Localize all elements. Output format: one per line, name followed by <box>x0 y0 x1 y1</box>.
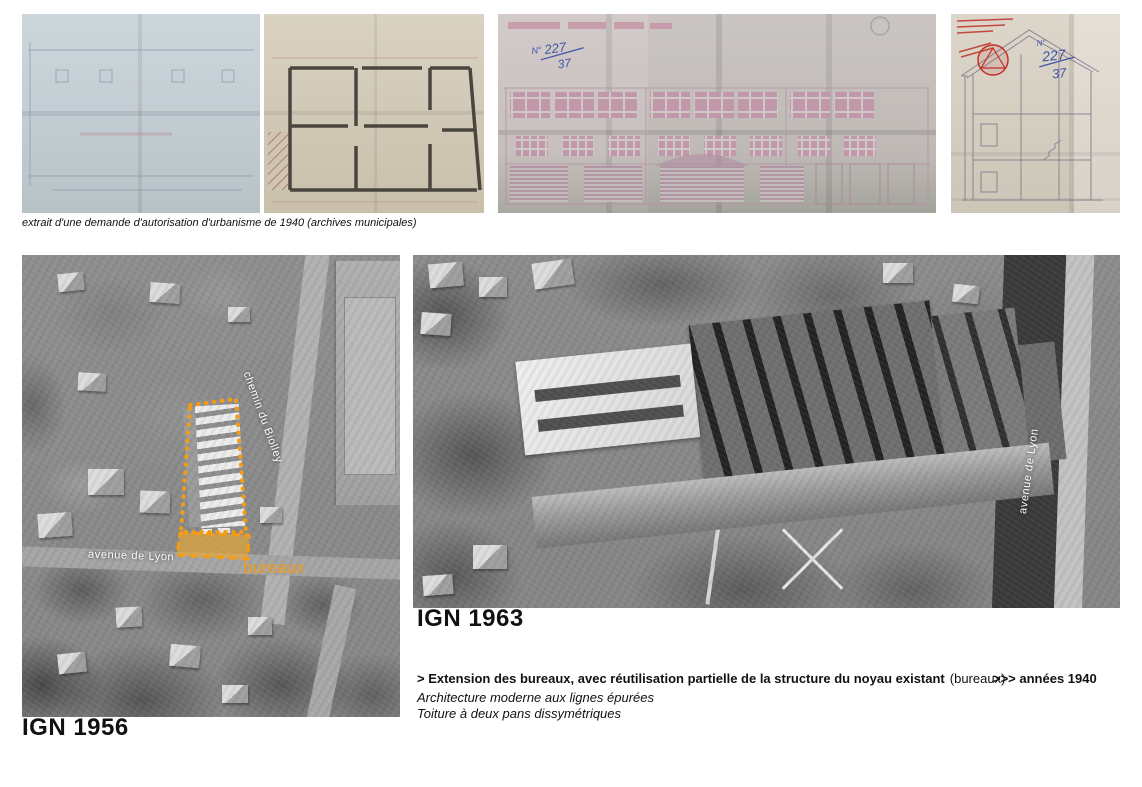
elevations-floorplan-drawing <box>22 14 484 213</box>
roof-vent-strip <box>534 375 680 402</box>
house-roof <box>420 312 451 336</box>
house-roof <box>952 284 980 305</box>
factory-east-wing <box>931 307 1030 465</box>
facade-drawing: N° 227 37 <box>498 14 936 213</box>
notes-line-2: Architecture moderne aux lignes épurées <box>417 690 1117 705</box>
notes-line-1-bold: > Extension des bureaux, avec réutilisat… <box>417 671 945 686</box>
plan-photo-section: N° 227 37 <box>951 14 1120 213</box>
plan-photo-elevations-and-floorplan <box>22 14 484 213</box>
aerial-photo-1963: avenue de Lyon <box>413 255 1120 608</box>
ign-1956-title: IGN 1956 <box>22 714 129 742</box>
notes-line-1-period: >>> années 1940 <box>993 671 1097 686</box>
plan-photo-facade: N° 227 37 <box>498 14 936 213</box>
house-roof <box>428 262 464 289</box>
house-roof <box>479 277 507 297</box>
section-drawing: N° 227 37 <box>951 14 1120 213</box>
house-roof <box>883 263 913 283</box>
municipal-stamp <box>978 45 1008 75</box>
annotation-overlay <box>22 255 400 717</box>
house-roof <box>473 545 507 569</box>
plans-caption: extrait d'une demande d'autorisation d'u… <box>22 217 417 229</box>
roof-vent-strip <box>538 405 684 432</box>
file-number-prefix: N° <box>1036 38 1047 48</box>
bureaux-zone-dashed <box>177 533 249 559</box>
factory-complex <box>505 302 1071 558</box>
file-number-numerator: 227 <box>1040 46 1067 65</box>
study-page: N° 227 37 <box>0 0 1142 787</box>
bureaux-zone-label: bureaux <box>243 558 304 578</box>
notes-line-1: > Extension des bureaux, avec réutilisat… <box>417 671 1117 689</box>
aerial-photo-1956: avenue de Lyon chemin du Biolley bureaux <box>22 255 400 717</box>
file-number-prefix: N° <box>531 45 543 56</box>
parcel-outline-dotted <box>181 399 246 532</box>
file-number-denominator: 37 <box>1051 65 1068 82</box>
notes-block: > Extension des bureaux, avec réutilisat… <box>417 671 1117 721</box>
ign-1963-title: IGN 1963 <box>417 605 524 633</box>
house-roof <box>422 574 453 596</box>
house-roof <box>531 258 574 289</box>
factory-white-roof <box>515 344 700 456</box>
notes-line-3: Toiture à deux pans dissymétriques <box>417 706 1117 721</box>
